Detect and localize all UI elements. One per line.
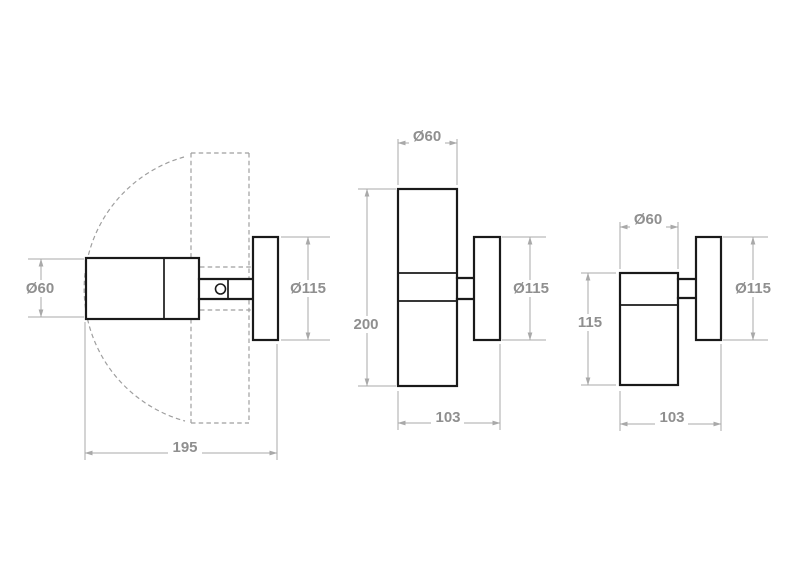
technical-drawing-canvas: Ø60 Ø115 195: [0, 0, 800, 565]
dimension-drawing: Ø60 Ø115 195: [0, 0, 800, 565]
pivot-screw: [216, 284, 226, 294]
single-front-view: Ø60 115 Ø115 103: [574, 211, 775, 431]
twin-fixture: [398, 189, 500, 386]
single-body-outline: [620, 273, 678, 385]
dim-label-single-head-diameter: Ø60: [634, 211, 662, 228]
twin-front-view: Ø60 200 Ø115 103: [350, 128, 553, 430]
dim-label-single-height: 115: [578, 314, 602, 331]
dimension-twin-head-diameter: Ø60: [398, 128, 457, 185]
single-fixture: [620, 237, 721, 385]
dim-label-twin-head-diameter: Ø60: [413, 128, 441, 145]
dimension-single-backplate-diameter: Ø115: [723, 237, 775, 340]
side-view: Ø60 Ø115 195: [23, 153, 330, 460]
dim-label-side-head-diameter: Ø60: [26, 280, 54, 297]
dim-label-twin-backplate-diameter: Ø115: [513, 280, 549, 297]
dim-label-twin-depth: 103: [435, 409, 460, 426]
twin-body-outline: [398, 189, 457, 386]
wall-plate-outline: [253, 237, 278, 340]
dim-label-side-projection: 195: [172, 439, 197, 456]
dimension-single-height: 115: [574, 273, 616, 385]
dimension-twin-height: 200: [350, 189, 396, 386]
lamp-head-outline: [86, 258, 199, 319]
dim-label-single-backplate-diameter: Ø115: [735, 280, 771, 297]
wall-plate-outline: [696, 237, 721, 340]
dimension-side-backplate-diameter: Ø115: [281, 237, 330, 340]
dimension-single-head-diameter: Ø60: [620, 211, 678, 269]
dim-label-single-depth: 103: [659, 409, 684, 426]
wall-plate-outline: [474, 237, 500, 340]
dimension-side-projection: 195: [85, 322, 277, 460]
dim-label-side-backplate-diameter: Ø115: [290, 280, 326, 297]
dim-label-twin-height: 200: [353, 316, 378, 333]
dimension-side-head-diameter: Ø60: [23, 259, 84, 317]
dimension-twin-backplate-diameter: Ø115: [502, 237, 553, 340]
